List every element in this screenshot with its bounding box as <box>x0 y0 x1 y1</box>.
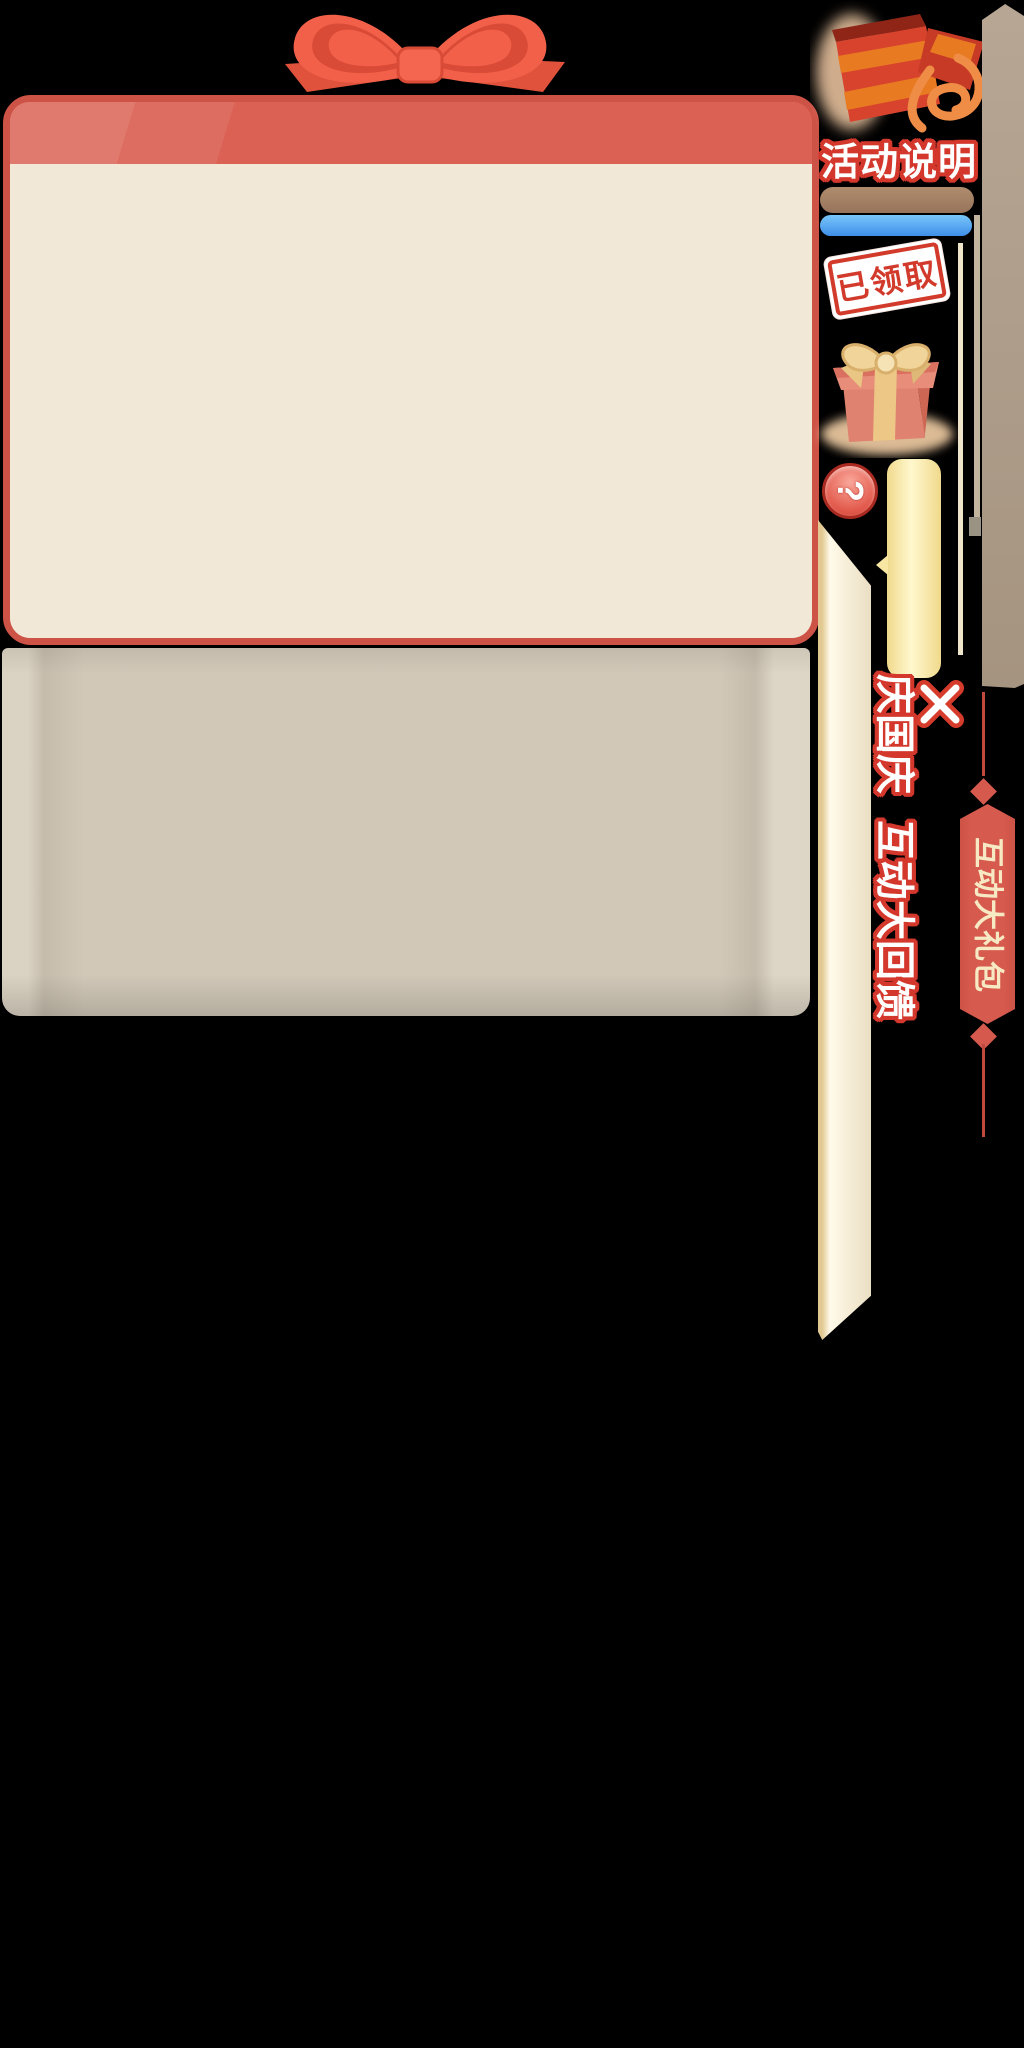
scroll-line-decor <box>974 215 980 517</box>
gift-box-button[interactable] <box>813 318 961 458</box>
main-panel-header <box>10 102 812 164</box>
scroll-line-stub <box>969 517 981 536</box>
help-button[interactable]: ? <box>822 463 878 519</box>
claimed-stamp-label: 已领取 <box>827 242 947 317</box>
tassel-diamond-top <box>970 778 997 805</box>
close-icon[interactable] <box>914 678 966 730</box>
lower-panel <box>2 648 810 1016</box>
main-panel-body <box>10 164 812 638</box>
brown-progress-bar <box>820 187 974 213</box>
claimed-stamp: 已领取 <box>822 237 951 321</box>
yellow-scrollbar[interactable] <box>887 459 941 678</box>
tassel-line-bottom <box>982 1044 985 1137</box>
side-edge-bar <box>982 4 1024 688</box>
screen: 活动说明 已领取 ? 庆国庆互动大回馈 <box>0 0 1024 2048</box>
event-title-vertical: 庆国庆互动大回馈 <box>871 674 917 1020</box>
gift-pack-ribbon-label: 互动大礼包 <box>968 837 1008 992</box>
activity-description-button[interactable]: 活动说明 <box>815 142 983 186</box>
main-panel <box>3 95 819 645</box>
question-mark-icon: ? <box>832 480 868 502</box>
gift-pack-ribbon-tab[interactable]: 互动大礼包 <box>960 804 1015 1024</box>
open-gift-icon <box>810 0 996 142</box>
blue-progress-bar <box>820 215 972 236</box>
tassel-line-top <box>982 692 985 776</box>
ribbon-bow-icon <box>255 0 585 104</box>
page-edge-strip <box>818 520 871 1340</box>
